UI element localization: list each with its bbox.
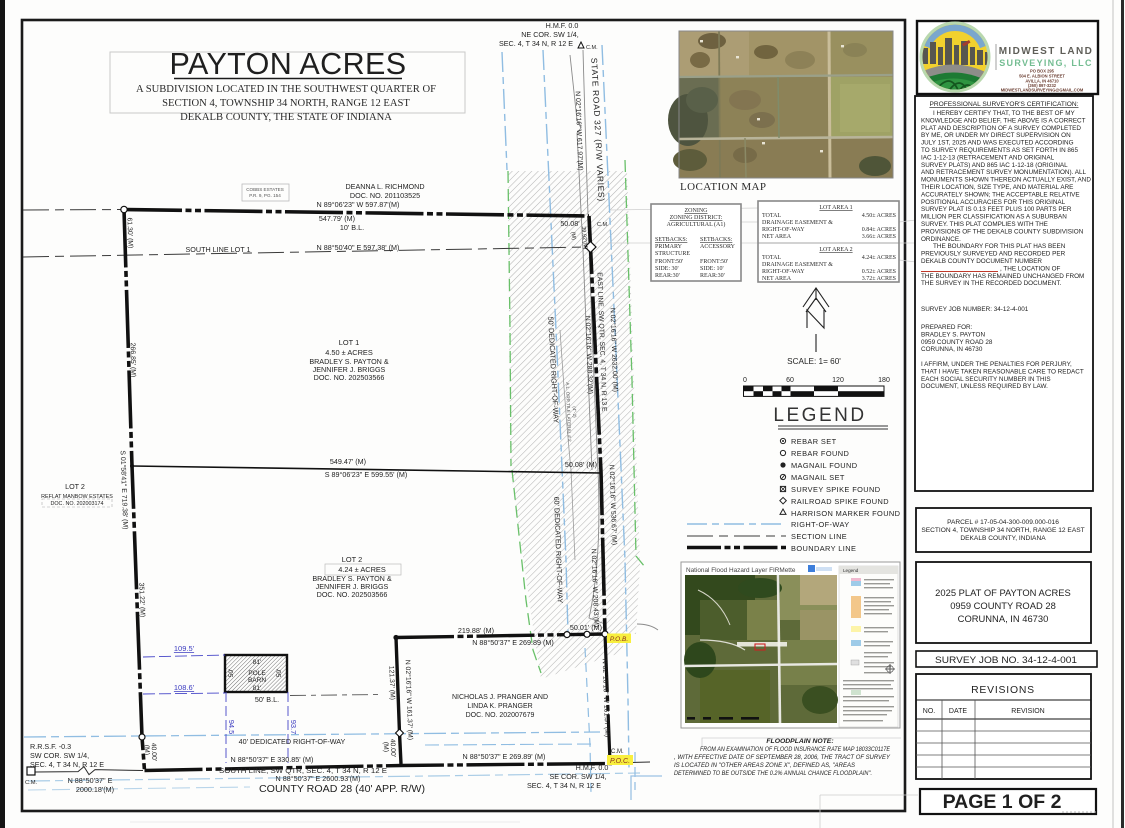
svg-text:C.M.: C.M.: [597, 222, 609, 228]
svg-text:SECTION 4, TOWNSHIP 34 NORTH,: SECTION 4, TOWNSHIP 34 NORTH, RANGE 12 E…: [162, 98, 410, 109]
svg-text:108.6': 108.6': [174, 683, 195, 692]
svg-text:C.M.: C.M.: [586, 45, 598, 51]
svg-text:SEC. 4, T 34 N, R 12 E: SEC. 4, T 34 N, R 12 E: [527, 781, 601, 790]
svg-text:IS LOCATED IN "OTHER AREAS ZO: IS LOCATED IN "OTHER AREAS ZONE X", DEFI…: [674, 762, 856, 769]
svg-text:SETBACKS:: SETBACKS:: [655, 237, 688, 243]
svg-text:DOC. NO. 202503566: DOC. NO. 202503566: [317, 590, 388, 599]
svg-text:50.08' (M): 50.08' (M): [565, 460, 597, 469]
svg-text:N 88°50'37" E: N 88°50'37" E: [68, 776, 113, 785]
svg-text:P.O.B.: P.O.B.: [610, 636, 629, 643]
svg-text:FRONT:50': FRONT:50': [700, 259, 728, 265]
svg-text:DOC. NO. 202503566: DOC. NO. 202503566: [314, 373, 385, 382]
svg-text:4.50± ACRES: 4.50± ACRES: [862, 213, 896, 219]
svg-text:H.M.F. 0.0: H.M.F. 0.0: [576, 763, 609, 772]
svg-text:SURVEY JOB NO. 34-12-4-001: SURVEY JOB NO. 34-12-4-001: [935, 655, 1077, 665]
svg-text:0959 COUNTY ROAD 28: 0959 COUNTY ROAD 28: [921, 339, 993, 346]
svg-text:RIGHT-OF-WAY: RIGHT-OF-WAY: [791, 520, 850, 529]
svg-text:NO.: NO.: [923, 708, 936, 715]
svg-text:40' DEDICATED RIGHT-OF-WAY: 40' DEDICATED RIGHT-OF-WAY: [239, 737, 346, 746]
svg-text:TO SURVEY REQUIREMENTS AS: TO SURVEY REQUIREMENTS AS SET FORTH IN 8…: [921, 147, 1078, 154]
svg-text:50': 50': [276, 669, 283, 677]
svg-text:DEANNA L. RICHMOND: DEANNA L. RICHMOND: [345, 182, 424, 191]
svg-text:JULY 1ST, 2025 AND WAS EX: JULY 1ST, 2025 AND WAS EXECUTED ACCORDIN…: [921, 140, 1074, 147]
svg-text:PAYTON ACRES: PAYTON ACRES: [169, 47, 406, 81]
svg-text:DATE: DATE: [949, 708, 967, 715]
svg-text:2025 PLAT OF PAYTON ACRES: 2025 PLAT OF PAYTON ACRES: [935, 587, 1071, 598]
svg-text:(M): (M): [382, 742, 389, 752]
svg-text:547.79' (M): 547.79' (M): [319, 214, 355, 223]
svg-text:, THE LOCATION OF: , THE LOCATION OF: [1000, 265, 1061, 272]
svg-text:50.08': 50.08': [560, 219, 580, 228]
svg-text:N 88°50'37" E 2600.93'(M): N 88°50'37" E 2600.93'(M): [276, 774, 361, 783]
svg-text:61.30' (M): 61.30' (M): [125, 217, 133, 248]
svg-text:MILLION PER CLASSIFICATION: MILLION PER CLASSIFICATION AS A SUBURBAN: [921, 214, 1067, 221]
svg-text:81': 81': [253, 659, 261, 666]
svg-text:POLE: POLE: [248, 670, 266, 677]
svg-text:KNOWLEDGE AND BELIEF, THE: KNOWLEDGE AND BELIEF, THE ABOVE IS A COR…: [921, 117, 1086, 124]
svg-text:Legend: Legend: [843, 568, 859, 573]
svg-text:National Flood Hazard Layer FI: National Flood Hazard Layer FIRMette: [686, 567, 796, 574]
svg-text:BRADLEY S. PAYTON: BRADLEY S. PAYTON: [921, 331, 985, 338]
svg-text:AND RETRACEMENT SURVEY MONU: AND RETRACEMENT SURVEY MONUMENTATION). A…: [921, 169, 1087, 176]
svg-text:BY ME, OR UNDER MY DIRECT: BY ME, OR UNDER MY DIRECT SUPERVISION ON: [921, 132, 1071, 139]
svg-text:REAR:30': REAR:30': [655, 273, 680, 279]
svg-text:LEGEND: LEGEND: [773, 405, 866, 426]
svg-text:SETBACKS:: SETBACKS:: [700, 237, 733, 243]
svg-text:DEKALB COUNTY, INDIANA: DEKALB COUNTY, INDIANA: [960, 535, 1046, 542]
svg-text:MAGNAIL SET: MAGNAIL SET: [791, 473, 845, 482]
svg-text:81': 81': [253, 685, 261, 692]
svg-text:THEIR LOCATION, SIZE TYPE,: THEIR LOCATION, SIZE TYPE, AND MATERIAL …: [921, 184, 1073, 191]
svg-text:SURVEY PLATS) AND 865 IAC: SURVEY PLATS) AND 865 IAC 1-12-18 (ORIGI…: [921, 162, 1068, 169]
svg-text:DEKALB COUNTY, THE STATE OF IN: DEKALB COUNTY, THE STATE OF INDIANA: [180, 112, 392, 123]
svg-text:TOTAL: TOTAL: [762, 255, 781, 261]
svg-text:NET AREA: NET AREA: [762, 234, 792, 240]
svg-text:DOC. NO. 202003174: DOC. NO. 202003174: [50, 501, 103, 507]
svg-text:N 88°50'37" E 330.85' (M: N 88°50'37" E 330.85' (M): [231, 755, 314, 764]
svg-text:A SUBDIVISION LOCATED IN THE S: A SUBDIVISION LOCATED IN THE SOUTHWEST Q…: [136, 84, 436, 95]
svg-text:180: 180: [878, 377, 890, 384]
svg-text:DOC. NO. 202007679: DOC. NO. 202007679: [466, 712, 535, 719]
svg-text:RIGHT-OF-WAY: RIGHT-OF-WAY: [762, 227, 805, 233]
svg-text:MIDWESTLANDSURVEYING@GMAIL.COM: MIDWESTLANDSURVEYING@GMAIL.COM: [1001, 88, 1084, 93]
svg-text:ZONING DISTRICT:: ZONING DISTRICT:: [670, 215, 723, 221]
svg-text:POSITIONAL ACCURACIES FOR T: POSITIONAL ACCURACIES FOR THIS ORIGINAL: [921, 199, 1066, 206]
svg-text:3.66± ACRES: 3.66± ACRES: [862, 234, 896, 240]
svg-text:C.M.: C.M.: [611, 749, 624, 755]
svg-text:RIGHT-OF-WAY: RIGHT-OF-WAY: [762, 269, 805, 275]
svg-text:BARN: BARN: [248, 677, 266, 684]
svg-text:0.84± ACRES: 0.84± ACRES: [862, 227, 896, 233]
svg-text:ORDINANCE.: ORDINANCE.: [921, 236, 961, 243]
svg-text:MAGNAIL FOUND: MAGNAIL FOUND: [791, 461, 858, 470]
svg-text:S 89°06'23" E 599.55' (M: S 89°06'23" E 599.55' (M): [325, 470, 408, 479]
svg-text:BOUNDARY LINE: BOUNDARY LINE: [791, 544, 856, 553]
svg-text:REAR:30': REAR:30': [700, 273, 725, 279]
svg-text:LOT 2: LOT 2: [342, 555, 362, 564]
svg-text:LOT 2: LOT 2: [65, 482, 85, 491]
svg-text:N 89°06'23" W 597.87'(M): N 89°06'23" W 597.87'(M): [317, 200, 400, 209]
svg-text:50.01' (M): 50.01' (M): [570, 623, 602, 632]
svg-text:SURVEY PLAT IS 0.13 FEET: SURVEY PLAT IS 0.13 FEET PLUS 100 PARTS …: [921, 206, 1072, 213]
svg-text:, WITH EFFECTIVE DATE OF SEPTE: , WITH EFFECTIVE DATE OF SEPTEMBER 28, 2…: [674, 754, 891, 761]
svg-text:4.50 ± ACRES: 4.50 ± ACRES: [325, 348, 373, 357]
svg-text:P.O.C.: P.O.C.: [610, 758, 630, 765]
svg-text:PROFESSIONAL SURVEYOR'S CERT: PROFESSIONAL SURVEYOR'S CERTIFICATION:: [929, 101, 1078, 108]
svg-text:NE COR. SW 1/4,: NE COR. SW 1/4,: [521, 30, 579, 39]
svg-text:ACCESSORY: ACCESSORY: [700, 244, 736, 250]
svg-text:FRONT:50': FRONT:50': [655, 259, 683, 265]
svg-text:PREVIOUSLY SURVEYED AND REC: PREVIOUSLY SURVEYED AND RECORDED PER: [921, 251, 1066, 258]
svg-text:REBAR SET: REBAR SET: [791, 437, 837, 446]
svg-text:PREPARED FOR:: PREPARED FOR:: [921, 324, 973, 331]
svg-text:DRAINAGE EASEMENT &: DRAINAGE EASEMENT &: [762, 262, 833, 268]
svg-text:351.22' (M): 351.22' (M): [137, 583, 145, 618]
svg-text:(4"-2): (4"-2): [572, 406, 577, 418]
svg-text:CORUNNA, IN 46730: CORUNNA, IN 46730: [958, 613, 1049, 624]
svg-text:10' B.L.: 10' B.L.: [340, 223, 364, 232]
svg-text:THE SURVEY IN THE RECORDED: THE SURVEY IN THE RECORDED DOCUMENT.: [921, 280, 1062, 287]
svg-text:60: 60: [786, 377, 794, 384]
svg-text:SURVEY. THIS PLAT COMPLIES: SURVEY. THIS PLAT COMPLIES WITH THE: [921, 221, 1048, 228]
svg-text:266.85' (M): 266.85' (M): [129, 343, 137, 378]
svg-text:N 88°50'40" E 597.38' (M: N 88°50'40" E 597.38' (M): [317, 243, 400, 252]
svg-text:PRIMARY: PRIMARY: [655, 244, 683, 250]
svg-text:0959 COUNTY ROAD 28: 0959 COUNTY ROAD 28: [950, 600, 1056, 611]
svg-text:SW COR. SW 1/4,: SW COR. SW 1/4,: [30, 751, 89, 760]
svg-text:LOT 1: LOT 1: [339, 338, 359, 347]
svg-text:3.72± ACRES: 3.72± ACRES: [862, 276, 896, 282]
svg-text:SCALE: 1= 60': SCALE: 1= 60': [787, 357, 841, 366]
svg-text:H.M.F. 0.0: H.M.F. 0.0: [546, 21, 579, 30]
svg-text:THE BOUNDARY FOR THIS PLAT: THE BOUNDARY FOR THIS PLAT HAS BEEN: [933, 243, 1066, 250]
svg-text:SECTION LINE: SECTION LINE: [791, 532, 847, 541]
svg-text:LOT AREA 1: LOT AREA 1: [819, 205, 852, 211]
svg-text:SEC. 4, T 34 N, R 12 E: SEC. 4, T 34 N, R 12 E: [499, 39, 573, 48]
svg-text:RAILROAD SPIKE FOUND: RAILROAD SPIKE FOUND: [791, 497, 889, 506]
svg-text:50': 50': [228, 669, 235, 677]
svg-text:SEC. 4, T 34 N, R 12 E: SEC. 4, T 34 N, R 12 E: [30, 760, 104, 769]
svg-text:THAT I HAVE TAKEN REASONAB: THAT I HAVE TAKEN REASONABLE CARE TO RED…: [921, 368, 1084, 375]
svg-text:NICHOLAS J. PRANGER AND: NICHOLAS J. PRANGER AND: [452, 694, 548, 701]
svg-text:PROVISIONS OF THE DEKALB C: PROVISIONS OF THE DEKALB COUNTY SUBDIVIS…: [921, 228, 1084, 235]
svg-text:DETERMINED TO BE OUTSIDE THE 0: DETERMINED TO BE OUTSIDE THE 0.2% ANNUAL…: [674, 770, 872, 777]
svg-text:50' B.L.: 50' B.L.: [255, 695, 279, 704]
svg-text:120: 120: [832, 377, 844, 384]
svg-text:SURVEY JOB NUMBER: 34-12-4-: SURVEY JOB NUMBER: 34-12-4-001: [921, 306, 1029, 313]
svg-text:REVISIONS: REVISIONS: [971, 685, 1035, 696]
svg-text:2000.18'(M): 2000.18'(M): [76, 785, 114, 794]
svg-text:THE BOUNDARY HAS REMAINED: THE BOUNDARY HAS REMAINED UNCHANGED FROM: [921, 273, 1084, 280]
svg-text:AGRICULTURAL (A1): AGRICULTURAL (A1): [667, 221, 726, 228]
svg-text:I HEREBY CERTIFY THAT, TO: I HEREBY CERTIFY THAT, TO THE BEST OF MY: [933, 110, 1075, 117]
svg-text:DRAINAGE EASEMENT &: DRAINAGE EASEMENT &: [762, 220, 833, 226]
svg-text:REBAR FOUND: REBAR FOUND: [791, 449, 849, 458]
svg-text:121.37' (M): 121.37' (M): [387, 666, 395, 700]
svg-text:PARCEL # 17-05-04-300-009.00: PARCEL # 17-05-04-300-009.000-016: [947, 519, 1059, 526]
svg-text:MONUMENTS SHOWN THEREON ACT: MONUMENTS SHOWN THEREON ACTUALLY EXIST, …: [921, 177, 1091, 184]
svg-text:NET AREA: NET AREA: [762, 276, 792, 282]
svg-text:HARRISON MARKER FOUND: HARRISON MARKER FOUND: [791, 509, 900, 518]
svg-text:C.M.: C.M.: [25, 780, 38, 786]
svg-text:0: 0: [743, 377, 747, 384]
svg-text:4.24± ACRES: 4.24± ACRES: [862, 255, 896, 261]
svg-text:109.5': 109.5': [174, 644, 195, 653]
svg-text:SOUTH LINE LOT 1: SOUTH LINE LOT 1: [186, 245, 251, 254]
svg-text:COBBS ESTATES: COBBS ESTATES: [246, 187, 284, 192]
svg-text:LOCATION MAP: LOCATION MAP: [680, 181, 766, 193]
svg-text:LINDA K. PRANGER: LINDA K. PRANGER: [467, 703, 532, 710]
svg-text:R.R.S.F. -0.3: R.R.S.F. -0.3: [30, 742, 71, 751]
svg-text:PAGE 1 OF 2: PAGE 1 OF 2: [943, 791, 1062, 813]
svg-text:ACCURATELY SHOWN; THE ACCEP: ACCURATELY SHOWN; THE ACCEPTABLE RELATIV…: [921, 191, 1080, 198]
svg-text:(M): (M): [143, 745, 150, 755]
svg-text:549.47' (M): 549.47' (M): [330, 457, 366, 466]
svg-text:P.R. 9, PG. 154: P.R. 9, PG. 154: [249, 193, 281, 198]
svg-text:94.5: 94.5: [227, 720, 236, 735]
svg-text:STRUCTURE: STRUCTURE: [655, 251, 690, 257]
svg-text:LOT AREA 2: LOT AREA 2: [819, 247, 852, 253]
svg-text:FROM AN EXAMINATION OF FLOOD I: FROM AN EXAMINATION OF FLOOD INSURANCE R…: [700, 746, 891, 753]
svg-text:MIDWEST LAND: MIDWEST LAND: [999, 46, 1094, 57]
svg-text:FLOODPLAIN NOTE:: FLOODPLAIN NOTE:: [766, 738, 833, 745]
svg-text:SURVEY SPIKE FOUND: SURVEY SPIKE FOUND: [791, 485, 880, 494]
svg-text:DOC. NO. 201103525: DOC. NO. 201103525: [350, 191, 420, 200]
svg-text:ZONING: ZONING: [685, 208, 709, 214]
svg-text:SECTION 4, TOWNSHIP 34 NOR: SECTION 4, TOWNSHIP 34 NORTH, RANGE 12 E…: [921, 527, 1084, 534]
svg-text:DOCUMENT, UNLESS REQUIRED B: DOCUMENT, UNLESS REQUIRED BY LAW.: [921, 383, 1048, 390]
svg-text:SIDE: 10': SIDE: 10': [700, 266, 724, 272]
svg-text:TOTAL: TOTAL: [762, 213, 781, 219]
svg-text:I AFFIRM, UNDER THE PENALT: I AFFIRM, UNDER THE PENALTIES FOR PERJUR…: [921, 361, 1072, 368]
svg-text:N 88°50'37" E 269.89' (M: N 88°50'37" E 269.89' (M): [463, 752, 546, 761]
svg-text:EACH SOCIAL SECURITY NUMBER: EACH SOCIAL SECURITY NUMBER IN THIS: [921, 376, 1051, 383]
svg-text:PLAT AND DESCRIPTION OF A: PLAT AND DESCRIPTION OF A SURVEY COMPLET…: [921, 125, 1081, 132]
svg-text:IAC 1-12-13 (RETRACEMENT AN: IAC 1-12-13 (RETRACEMENT AND ORIGINAL: [921, 154, 1055, 161]
svg-text:SE COR. SW 1/4,: SE COR. SW 1/4,: [549, 772, 606, 781]
svg-text:CORUNNA, IN 46730: CORUNNA, IN 46730: [921, 346, 983, 353]
svg-text:N 88°50'37" E 269.89 (M): N 88°50'37" E 269.89 (M): [472, 638, 554, 647]
svg-text:COUNTY ROAD 28 (40' APP.: COUNTY ROAD 28 (40' APP. R/W): [259, 784, 425, 795]
svg-text:SURVEYING, LLC: SURVEYING, LLC: [999, 58, 1093, 68]
svg-text:93.7: 93.7: [289, 720, 298, 735]
svg-text:219.88' (M): 219.88' (M): [458, 626, 494, 635]
svg-text:REVISION: REVISION: [1011, 708, 1044, 715]
svg-text:SIDE: 30': SIDE: 30': [655, 266, 679, 272]
svg-text:DEKALB COUNTY DOCUMENT NUMB: DEKALB COUNTY DOCUMENT NUMBER: [921, 258, 1042, 265]
svg-text:0.52± ACRES: 0.52± ACRES: [862, 269, 896, 275]
svg-text:4.24 ± ACRES: 4.24 ± ACRES: [338, 565, 386, 574]
